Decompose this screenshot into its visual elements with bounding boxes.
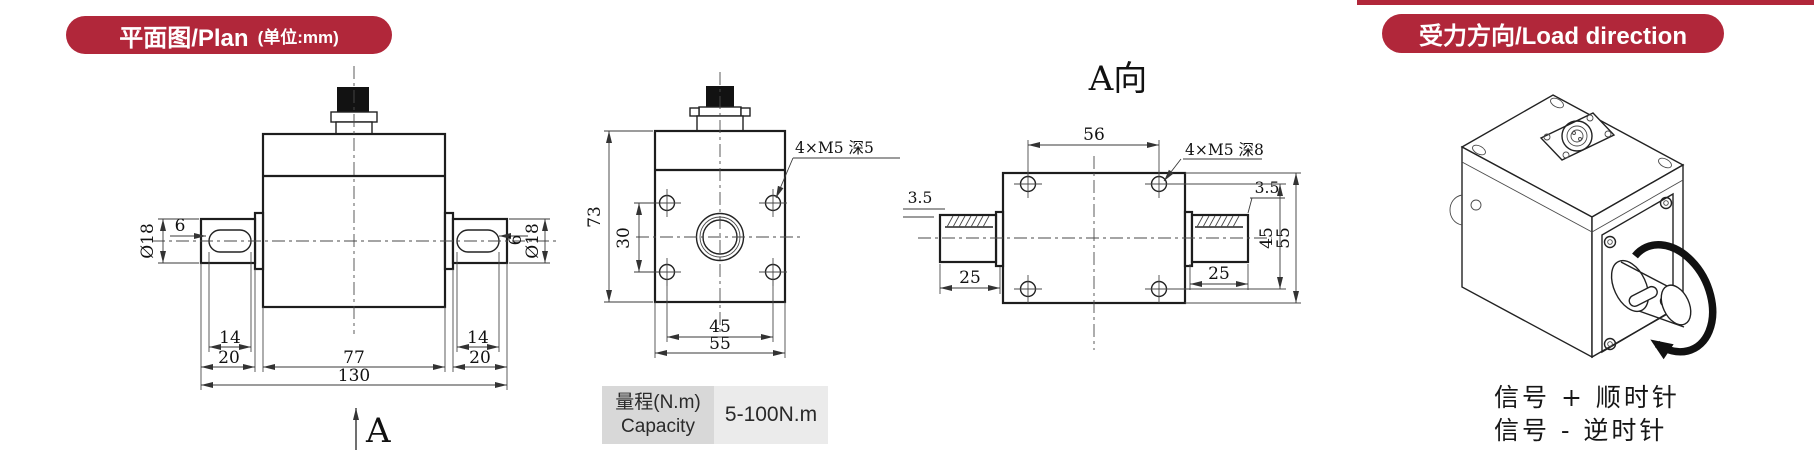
capacity-value: 5-100N.m — [725, 403, 817, 427]
a-view-hole-note: 4×M5 深8 — [1185, 141, 1264, 159]
dim-front-dia-left: Ø18 — [138, 223, 158, 259]
datasheet-panel: 平面图/Plan (单位:mm) 受力方向/Load direction — [0, 0, 1814, 454]
a-view-right-shaft — [1192, 215, 1248, 262]
dim-front-total: 130 — [338, 366, 370, 386]
a-view-title: A向 — [1088, 59, 1148, 99]
dim-front-key-left: 14 — [219, 328, 241, 348]
iso-view — [1450, 95, 1713, 357]
capacity-table-header: 量程(N.m) Capacity — [602, 386, 714, 444]
capacity-value-cell: 5-100N.m — [714, 386, 828, 444]
dim-a-shaft-right: 25 — [1208, 264, 1230, 284]
view-a-arrow-label: A — [365, 411, 391, 451]
dim-a-key-depth-right: 3.5 — [1255, 179, 1280, 197]
dim-front-key-right: 14 — [467, 328, 489, 348]
capacity-label-cn: 量程(N.m) — [615, 391, 700, 415]
side-view: 73 30 4×M5 深5 45 55 — [585, 72, 900, 358]
capacity-table: 量程(N.m) Capacity 5-100N.m — [602, 386, 828, 444]
dim-front-dia-right: Ø18 — [523, 223, 543, 259]
dim-side-width: 55 — [709, 334, 731, 354]
dim-front-shaft-left: 20 — [218, 348, 240, 368]
dim-a-height: 55 — [1274, 227, 1294, 249]
signal-direction-text: 信号 + 顺时针 信号 - 逆时针 — [1494, 381, 1680, 447]
a-view: A向 — [903, 59, 1301, 350]
front-connector-cap — [337, 87, 369, 112]
iso-side-lug — [1450, 195, 1462, 225]
dim-front-offset-left: 6 — [175, 216, 186, 236]
side-hole-note: 4×M5 深5 — [795, 139, 874, 157]
signal-counterclockwise-line: 信号 - 逆时针 — [1494, 414, 1680, 447]
dim-front-body: 77 — [343, 348, 365, 368]
capacity-label-en: Capacity — [621, 415, 695, 439]
signal-clockwise-line: 信号 + 顺时针 — [1494, 381, 1680, 414]
dim-a-shaft-left: 25 — [959, 268, 981, 288]
dim-a-key-depth-left: 3.5 — [908, 189, 933, 207]
dim-a-hole-h: 56 — [1083, 125, 1105, 145]
dim-front-shaft-right: 20 — [469, 348, 491, 368]
dim-side-height: 73 — [585, 206, 605, 228]
front-view: Ø18 6 6 Ø18 14 20 — [138, 66, 556, 451]
dim-side-hole-v: 30 — [614, 227, 634, 249]
